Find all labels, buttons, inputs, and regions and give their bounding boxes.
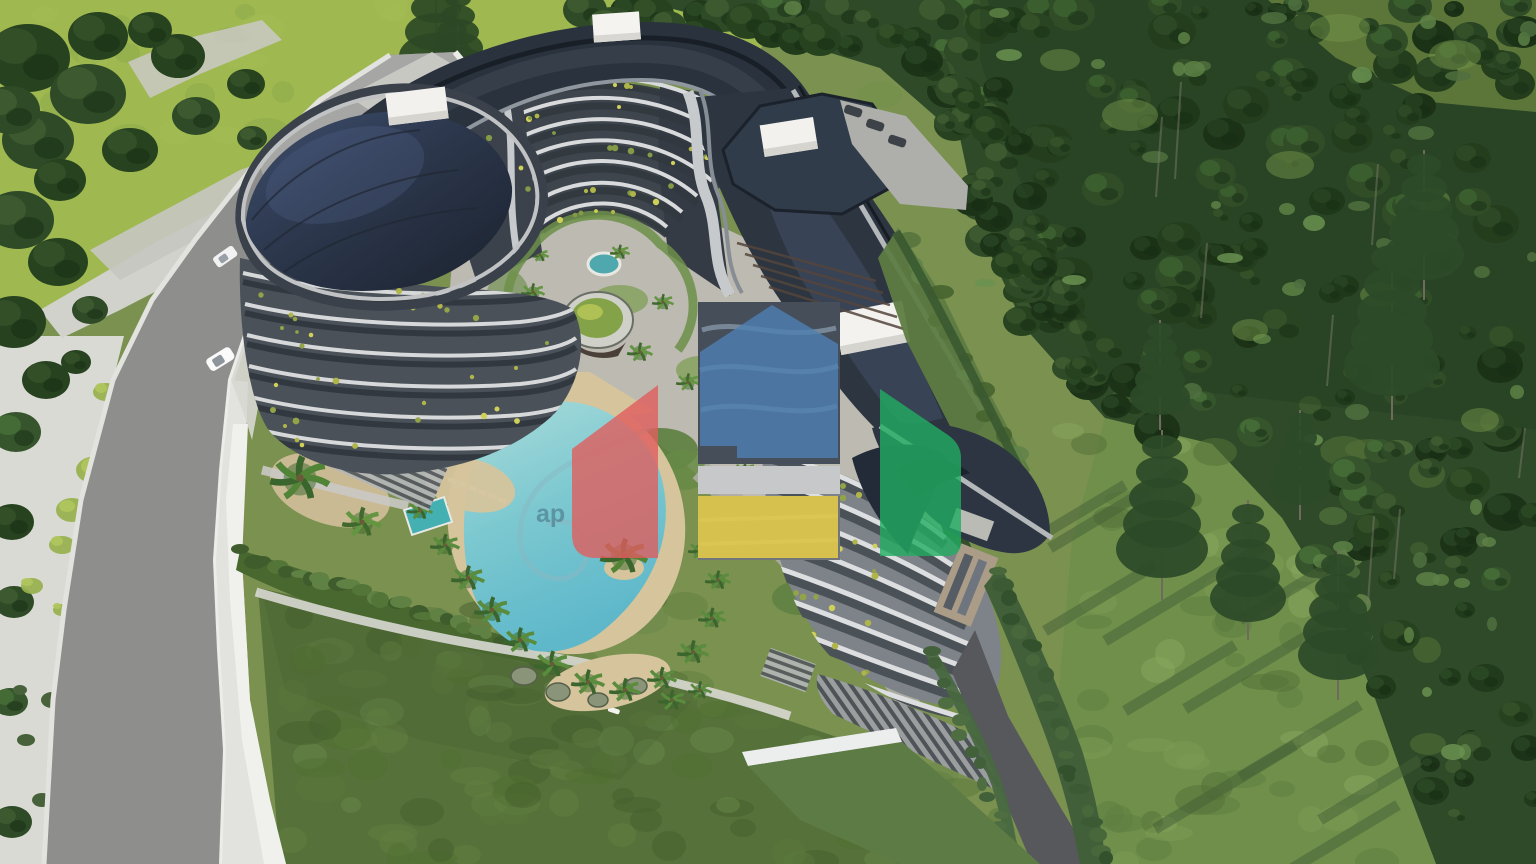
- svg-text:ap: ap: [536, 500, 565, 528]
